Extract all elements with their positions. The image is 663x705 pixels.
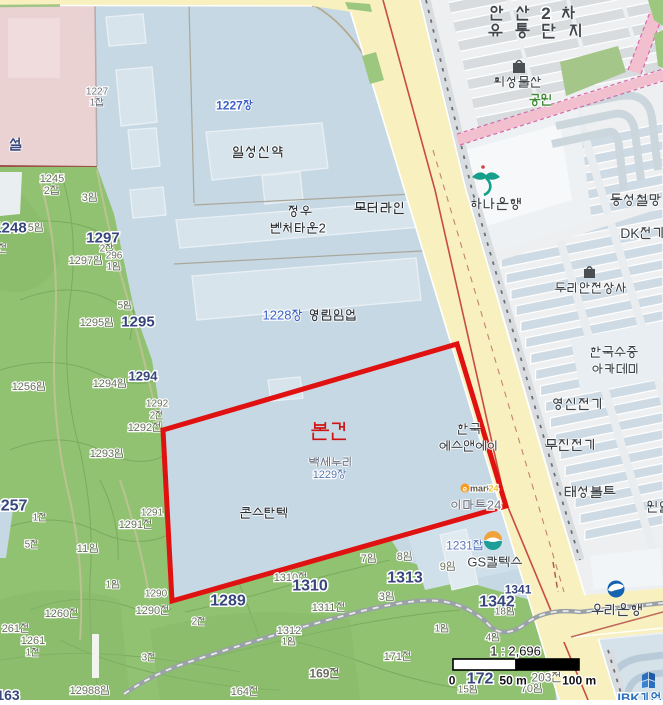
svg-text:1260: 1260 bbox=[45, 608, 69, 620]
svg-text:296: 296 bbox=[106, 251, 123, 262]
svg-text:163: 163 bbox=[0, 687, 20, 700]
svg-text:2: 2 bbox=[192, 617, 198, 628]
svg-text:164: 164 bbox=[231, 686, 249, 698]
svg-text:1291: 1291 bbox=[141, 508, 164, 519]
svg-text:IBK: IBK bbox=[617, 691, 640, 700]
svg-text:7: 7 bbox=[361, 553, 367, 565]
svg-text:171: 171 bbox=[384, 651, 402, 663]
svg-text:1248: 1248 bbox=[0, 219, 27, 236]
svg-text:12988: 12988 bbox=[70, 685, 101, 697]
svg-text:50 m: 50 m bbox=[499, 673, 526, 687]
svg-text:1294: 1294 bbox=[129, 369, 159, 384]
svg-text:DK: DK bbox=[620, 225, 640, 241]
svg-text:5: 5 bbox=[25, 540, 31, 551]
svg-text:261: 261 bbox=[2, 623, 20, 635]
svg-text:172: 172 bbox=[467, 671, 494, 688]
svg-text:24: 24 bbox=[489, 484, 499, 494]
svg-text:5: 5 bbox=[118, 301, 124, 312]
svg-text:1: 1 bbox=[435, 624, 441, 635]
svg-text:0: 0 bbox=[449, 673, 456, 687]
svg-text:1295: 1295 bbox=[80, 317, 104, 329]
svg-text:18: 18 bbox=[495, 607, 507, 618]
svg-text:3: 3 bbox=[82, 192, 88, 204]
svg-text:1261: 1261 bbox=[21, 635, 45, 647]
svg-text:1312: 1312 bbox=[277, 625, 301, 637]
svg-text:1297: 1297 bbox=[69, 255, 93, 267]
svg-text:1: 1 bbox=[106, 580, 112, 591]
svg-text:2: 2 bbox=[319, 221, 326, 236]
svg-text:1295: 1295 bbox=[121, 313, 154, 330]
svg-text:2: 2 bbox=[150, 411, 156, 422]
svg-text:24: 24 bbox=[487, 498, 501, 513]
svg-text:1290: 1290 bbox=[136, 605, 160, 617]
svg-text:1293: 1293 bbox=[90, 448, 114, 460]
svg-text:1313: 1313 bbox=[387, 570, 423, 587]
svg-text:1289: 1289 bbox=[210, 593, 246, 610]
svg-text:1292: 1292 bbox=[146, 399, 169, 410]
svg-text:1292: 1292 bbox=[128, 422, 152, 434]
svg-text:1294: 1294 bbox=[93, 378, 117, 390]
svg-text:1: 1 bbox=[26, 648, 32, 659]
svg-text:4: 4 bbox=[486, 633, 492, 644]
svg-text:mart: mart bbox=[470, 484, 490, 494]
svg-text:GS: GS bbox=[467, 555, 486, 570]
svg-text:1: 1 bbox=[282, 637, 288, 648]
svg-text:1291: 1291 bbox=[119, 519, 143, 531]
svg-text:2: 2 bbox=[44, 185, 50, 197]
svg-text:203: 203 bbox=[531, 670, 551, 684]
svg-text:1: 1 bbox=[33, 513, 39, 524]
svg-text:169: 169 bbox=[309, 666, 329, 680]
svg-text:1341: 1341 bbox=[505, 582, 532, 596]
svg-text:1245: 1245 bbox=[40, 173, 64, 185]
svg-text:1 : 2,696: 1 : 2,696 bbox=[490, 644, 541, 659]
svg-text:9: 9 bbox=[440, 561, 446, 573]
svg-text:11: 11 bbox=[77, 543, 88, 555]
svg-text:1231: 1231 bbox=[446, 538, 473, 552]
svg-text:1: 1 bbox=[107, 262, 113, 273]
svg-text:1: 1 bbox=[90, 98, 96, 109]
svg-text:3: 3 bbox=[379, 591, 385, 603]
svg-text:257: 257 bbox=[1, 498, 28, 515]
svg-text:3: 3 bbox=[142, 653, 148, 664]
svg-text:1256: 1256 bbox=[12, 381, 36, 393]
svg-text:1228: 1228 bbox=[263, 308, 292, 323]
svg-text:5: 5 bbox=[28, 222, 34, 234]
svg-text:1310: 1310 bbox=[292, 578, 328, 595]
svg-text:1227: 1227 bbox=[86, 87, 109, 98]
svg-text:1290: 1290 bbox=[145, 589, 168, 600]
svg-text:100 m: 100 m bbox=[562, 673, 596, 687]
svg-text:2: 2 bbox=[541, 4, 561, 23]
svg-text:2: 2 bbox=[100, 244, 106, 255]
svg-text:8: 8 bbox=[397, 551, 403, 563]
svg-text:1229: 1229 bbox=[313, 469, 337, 481]
svg-text:1227: 1227 bbox=[216, 98, 243, 112]
svg-text:e: e bbox=[463, 484, 468, 493]
svg-text:1311: 1311 bbox=[312, 602, 336, 614]
